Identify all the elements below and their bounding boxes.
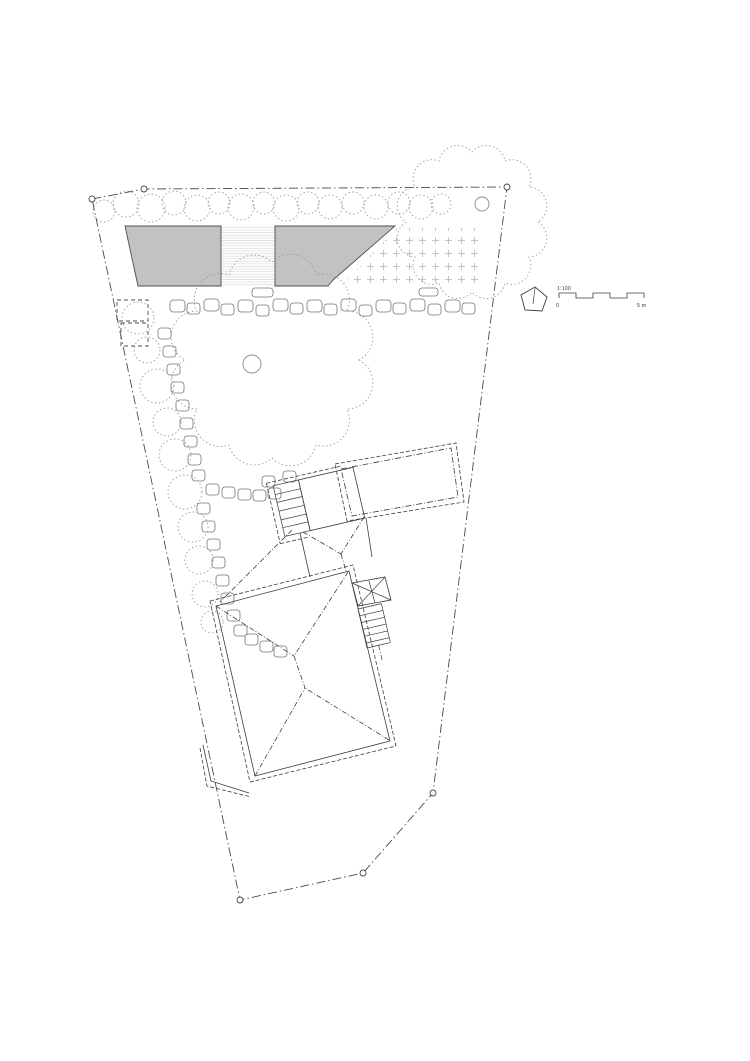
vegetation: [93, 145, 547, 633]
site-plan-page: 1:100 0 5 m: [0, 0, 750, 1061]
scale-max-label: 5 m: [637, 303, 647, 309]
scale-ratio-label: 1:100: [557, 286, 571, 292]
house-walls: [216, 571, 390, 776]
terrace-overhang: [200, 748, 251, 797]
entry-wing-walls: [298, 467, 364, 530]
shrub-rows: [158, 288, 475, 657]
carport: [335, 443, 464, 521]
property-boundary: [89, 184, 510, 903]
tree-trunk-small: [475, 197, 489, 211]
entry-overhang: [266, 466, 354, 544]
boundary-line: [92, 187, 507, 900]
north-arrow-icon: [521, 287, 547, 311]
garden-stairs: [358, 604, 394, 664]
entry-wing: [266, 463, 366, 543]
scale-bar: 1:100 0 5 m: [556, 286, 647, 309]
terrace-edge: [203, 745, 249, 793]
house-roof-overhang: [210, 565, 396, 782]
garden-stair-landing: [352, 577, 391, 606]
scale-zero-label: 0: [556, 303, 559, 309]
tree-trunk-large: [243, 355, 261, 373]
roof-hip-lines: [216, 517, 389, 776]
garage-left: [125, 226, 221, 286]
carport-roof-edge: [335, 443, 464, 521]
boundary-survey-points: [89, 184, 510, 903]
scale-bar-line: [559, 293, 644, 298]
neck-walls: [300, 518, 372, 577]
site-plan-drawing: 1:100 0 5 m: [0, 0, 750, 1061]
